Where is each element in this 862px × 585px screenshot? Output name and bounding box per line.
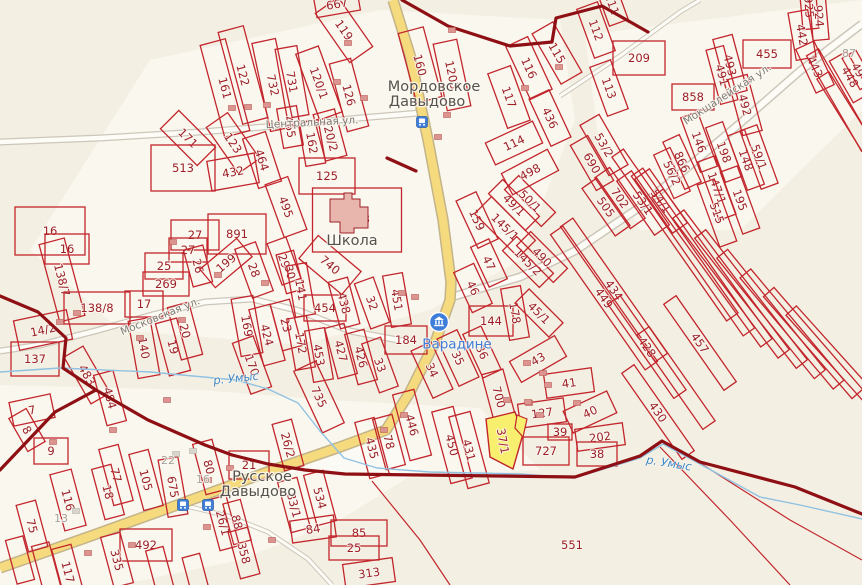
bus-wheel-glyph xyxy=(419,124,421,126)
parcel-number: 667 xyxy=(325,0,349,13)
building xyxy=(412,295,419,300)
building xyxy=(574,401,581,406)
bus-stop-icon[interactable] xyxy=(178,500,189,511)
building-gray xyxy=(190,449,197,454)
place-name-label: Мордовское xyxy=(388,79,481,95)
gray-parcel-number: 13 xyxy=(54,512,68,525)
parcel-number: 137 xyxy=(24,352,46,366)
building-column-glyph xyxy=(438,320,440,324)
field-line-1 xyxy=(372,481,450,585)
building-gray xyxy=(73,509,80,514)
building xyxy=(435,135,442,140)
building xyxy=(74,311,81,316)
parcel-number: 41 xyxy=(561,375,577,391)
parcel-number: 14/2 xyxy=(29,320,57,339)
parcel-number: 924 xyxy=(811,4,827,27)
bus-wheel-glyph xyxy=(184,507,186,509)
parcel-number: 17 xyxy=(137,297,152,311)
parcel-number: 178 xyxy=(506,301,524,325)
building xyxy=(229,106,236,111)
bus-body-glyph xyxy=(419,119,425,124)
parcel-number: 457 xyxy=(688,330,712,356)
parcel-number: 453 xyxy=(310,343,328,367)
building xyxy=(50,440,57,445)
parcel[interactable]: 43 xyxy=(509,336,566,383)
building xyxy=(334,80,341,85)
place-name-label: Давыдово xyxy=(220,484,297,500)
parcel-number: 700 xyxy=(489,385,508,410)
building xyxy=(449,28,456,33)
parcel-number: 202 xyxy=(588,429,612,446)
parcel-number: 43 xyxy=(528,349,548,368)
place-name-label: Давыдово xyxy=(389,94,466,110)
building xyxy=(137,336,144,341)
parcel-number: 125 xyxy=(316,169,338,183)
parcel-number: 85 xyxy=(352,526,367,540)
parcel-number: 492 xyxy=(135,538,157,552)
building xyxy=(264,103,271,108)
building xyxy=(524,361,531,366)
parcel-number: 45/1 xyxy=(525,299,553,327)
parcel-number: 858 xyxy=(682,90,704,104)
building-column-glyph xyxy=(441,320,443,324)
parcel-number: 144 xyxy=(480,314,502,328)
parcel-number: 455 xyxy=(756,47,778,61)
parcel-number: 727 xyxy=(535,444,557,458)
parcel-number: 269 xyxy=(155,277,177,291)
bus-wheel-glyph xyxy=(209,507,211,509)
gray-parcel-number: 87 xyxy=(842,47,856,60)
building xyxy=(537,413,544,418)
parcel-number: 430 xyxy=(646,399,670,425)
building xyxy=(522,86,529,91)
parcel-number: 690 xyxy=(580,150,603,176)
building-column-glyph xyxy=(435,320,437,324)
parcel-number: 27 xyxy=(188,228,203,242)
building xyxy=(129,543,136,548)
parcel-number: 513 xyxy=(172,161,194,175)
parcel[interactable]: 313 xyxy=(343,558,396,585)
parcel[interactable]: 667 xyxy=(314,0,361,18)
building xyxy=(525,400,532,405)
parcel-number: 426 xyxy=(351,345,370,370)
building xyxy=(399,291,406,296)
gray-parcel-number: 22 xyxy=(161,454,175,467)
building-base-glyph xyxy=(434,325,444,326)
building xyxy=(269,538,276,543)
building xyxy=(361,96,368,101)
bus-stop-icon[interactable] xyxy=(203,500,214,511)
building xyxy=(57,320,64,325)
building xyxy=(170,240,177,245)
building xyxy=(215,273,222,278)
building xyxy=(401,413,408,418)
bus-stop-icon[interactable] xyxy=(417,117,428,128)
parcel-number: 38 xyxy=(590,447,605,461)
building xyxy=(381,428,388,433)
parcel-number: 33 xyxy=(371,356,389,375)
gray-parcel-number: 16 xyxy=(196,473,210,486)
building xyxy=(504,398,511,403)
field-parcel-number: 551 xyxy=(561,538,583,552)
parcel-number: 40 xyxy=(580,403,599,422)
bus-wheel-glyph xyxy=(423,124,425,126)
parcel-number: 184 xyxy=(395,333,417,347)
poi-name-label: Варадине xyxy=(422,337,492,353)
parcel-number: 138/8 xyxy=(80,301,113,315)
building xyxy=(540,371,547,376)
building xyxy=(179,318,186,323)
building xyxy=(545,383,552,388)
building xyxy=(345,41,352,46)
place-name-label: Русское xyxy=(232,469,292,485)
building xyxy=(164,398,171,403)
building xyxy=(110,428,117,433)
parcel-number: 84 xyxy=(305,521,321,537)
parcel-number: 9 xyxy=(47,444,54,458)
parcel-number: 25 xyxy=(347,541,362,555)
cadastral-map[interactable]: 161122732731120/112611966717151312343246… xyxy=(0,0,862,585)
building xyxy=(245,105,252,110)
bus-body-glyph xyxy=(180,502,186,507)
parcel-number: 427 xyxy=(331,339,350,364)
landmark-poi-icon[interactable] xyxy=(430,313,449,332)
building xyxy=(444,113,451,118)
bus-wheel-glyph xyxy=(205,507,207,509)
building xyxy=(556,65,563,70)
parcel-number: 454 xyxy=(314,301,336,315)
parcel-number: 209 xyxy=(628,51,650,65)
parcel-number: 20 xyxy=(176,322,193,340)
place-name-label: Школа xyxy=(326,233,377,249)
bus-body-glyph xyxy=(205,502,211,507)
building xyxy=(85,551,92,556)
parcel[interactable]: 38 xyxy=(577,442,617,466)
building xyxy=(204,525,211,530)
parcel-number: 25 xyxy=(157,259,172,273)
map-canvas[interactable]: 161122732731120/112611966717151312343246… xyxy=(0,0,862,585)
building xyxy=(262,281,269,286)
bus-wheel-glyph xyxy=(180,507,182,509)
parcel-number: 313 xyxy=(357,565,381,582)
